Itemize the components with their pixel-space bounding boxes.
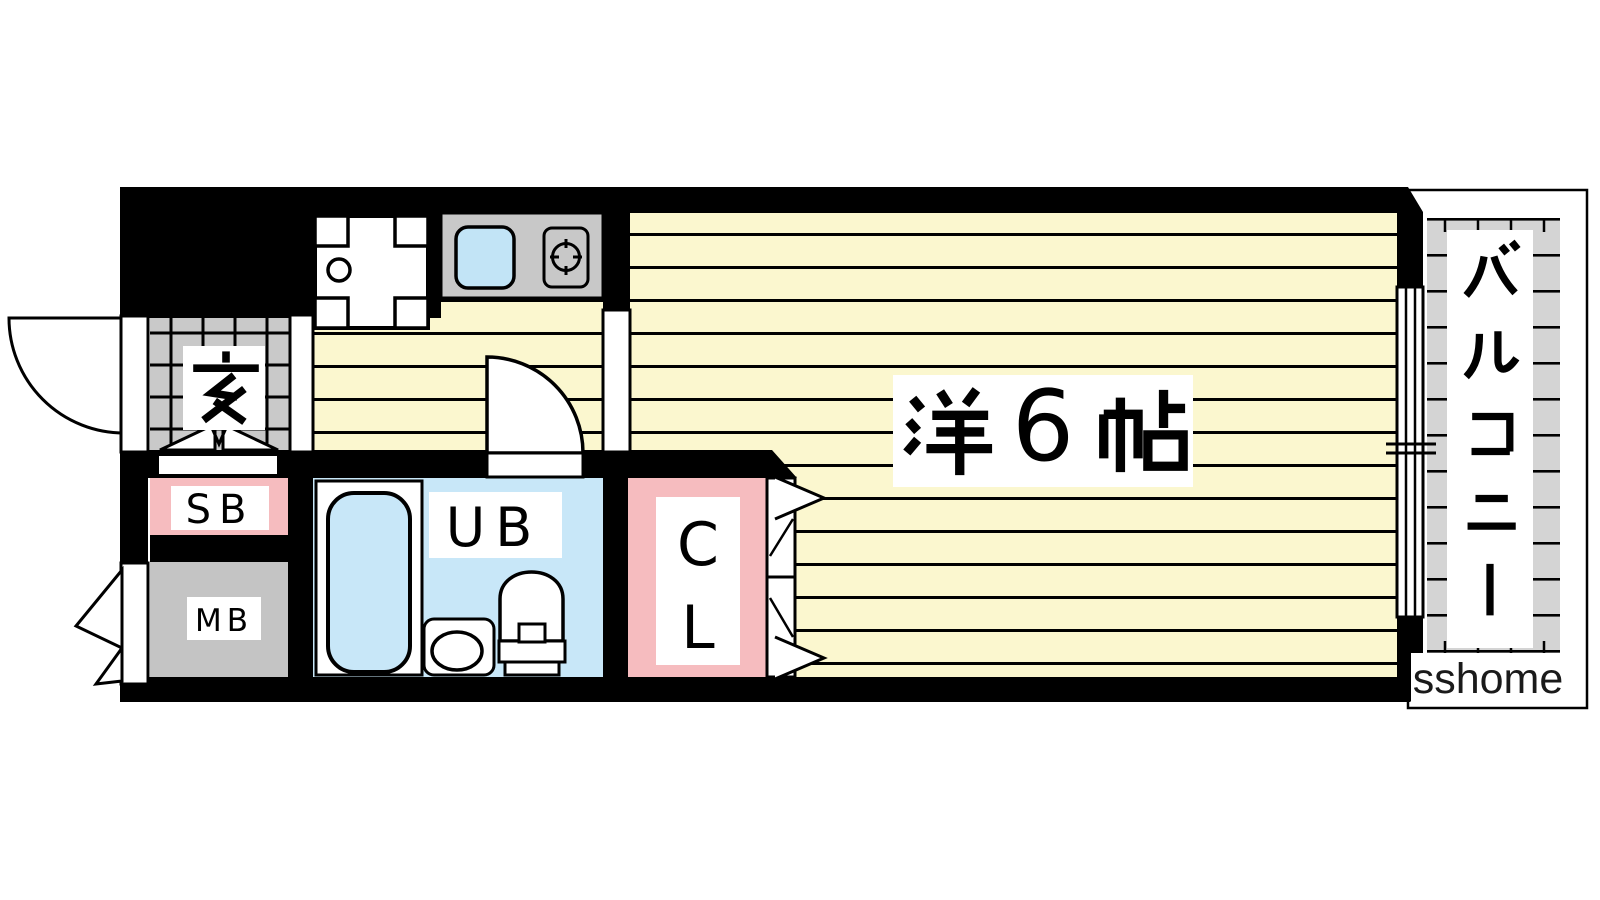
closet-label-c: C (677, 510, 719, 580)
entrance-step-sill (158, 455, 278, 475)
toilet-tank-icon (499, 641, 565, 662)
washer-pan-corner-br (395, 298, 428, 328)
bath-door-leaf (487, 453, 583, 477)
entrance-step-strip (290, 315, 313, 452)
toilet-base-icon (505, 662, 559, 675)
meter-box-door-opening (121, 563, 148, 684)
floor-plan-svg: SB MB UB C L 6 (0, 0, 1600, 900)
wall-bath-left (288, 450, 313, 677)
entry-door-swing-icon (9, 318, 124, 433)
wall-partition (603, 213, 630, 310)
floor-plan-page: SB MB UB C L 6 (0, 0, 1600, 900)
toilet-button-icon (519, 624, 545, 642)
bathtub-icon (328, 493, 410, 672)
room-doorway-opening (603, 310, 630, 452)
closet-label-l: L (681, 593, 715, 663)
meter-box-door-flap-lower-icon (96, 648, 122, 684)
washer-pan-drain-icon (328, 259, 350, 281)
entry-door-opening (121, 316, 148, 452)
washer-pan-corner-bl (315, 298, 348, 328)
meter-box-door-flap-upper-icon (76, 570, 122, 648)
shoe-box-label: SB (186, 487, 255, 533)
wall-closet-left (603, 478, 628, 677)
wall-sb-mb-separator (150, 535, 288, 562)
meter-box-label: MB (195, 603, 253, 639)
watermark-text: sshome (1413, 655, 1564, 703)
main-room-size-digit: 6 (1012, 370, 1074, 484)
washer-pan-corner-tl (315, 216, 348, 246)
washer-pan-corner-tr (395, 216, 428, 246)
unit-bath-label: UB (446, 496, 543, 559)
washbasin-bowl-icon (432, 632, 482, 670)
kitchen-sink-icon (456, 227, 514, 288)
